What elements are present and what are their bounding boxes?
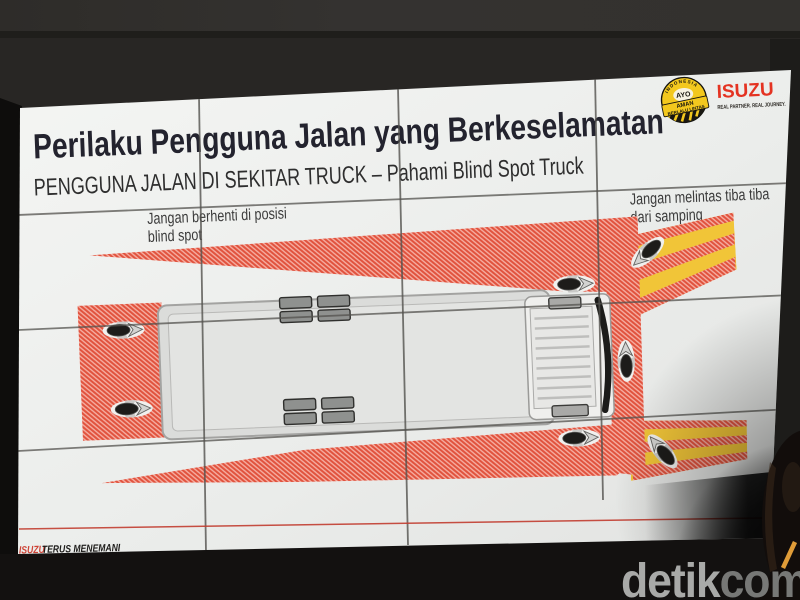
svg-text:detikcom: detikcom (621, 554, 800, 600)
